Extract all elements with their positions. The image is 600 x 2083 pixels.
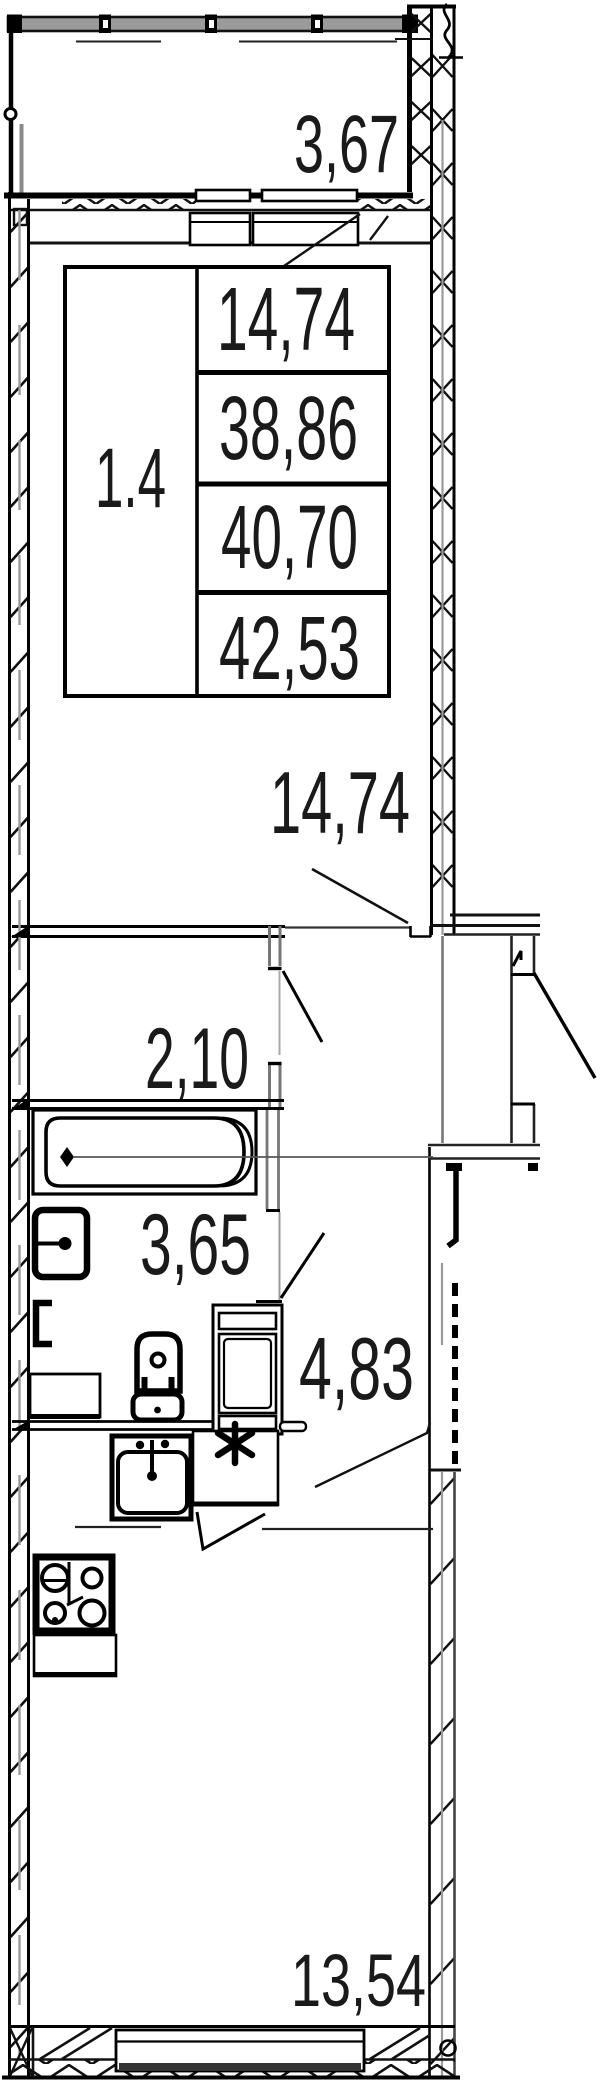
- svg-text:4,83: 4,83: [299, 1319, 414, 1418]
- svg-text:14,74: 14,74: [217, 270, 355, 370]
- svg-text:3,65: 3,65: [140, 1197, 251, 1293]
- svg-text:38,86: 38,86: [219, 379, 358, 479]
- svg-text:40,70: 40,70: [221, 488, 358, 588]
- svg-text:2,10: 2,10: [145, 1011, 249, 1107]
- svg-text:3,67: 3,67: [294, 99, 399, 190]
- svg-text:42,53: 42,53: [219, 599, 360, 699]
- svg-text:14,74: 14,74: [270, 753, 410, 852]
- svg-text:13,54: 13,54: [291, 1939, 426, 2022]
- svg-text:1.4: 1.4: [95, 431, 166, 525]
